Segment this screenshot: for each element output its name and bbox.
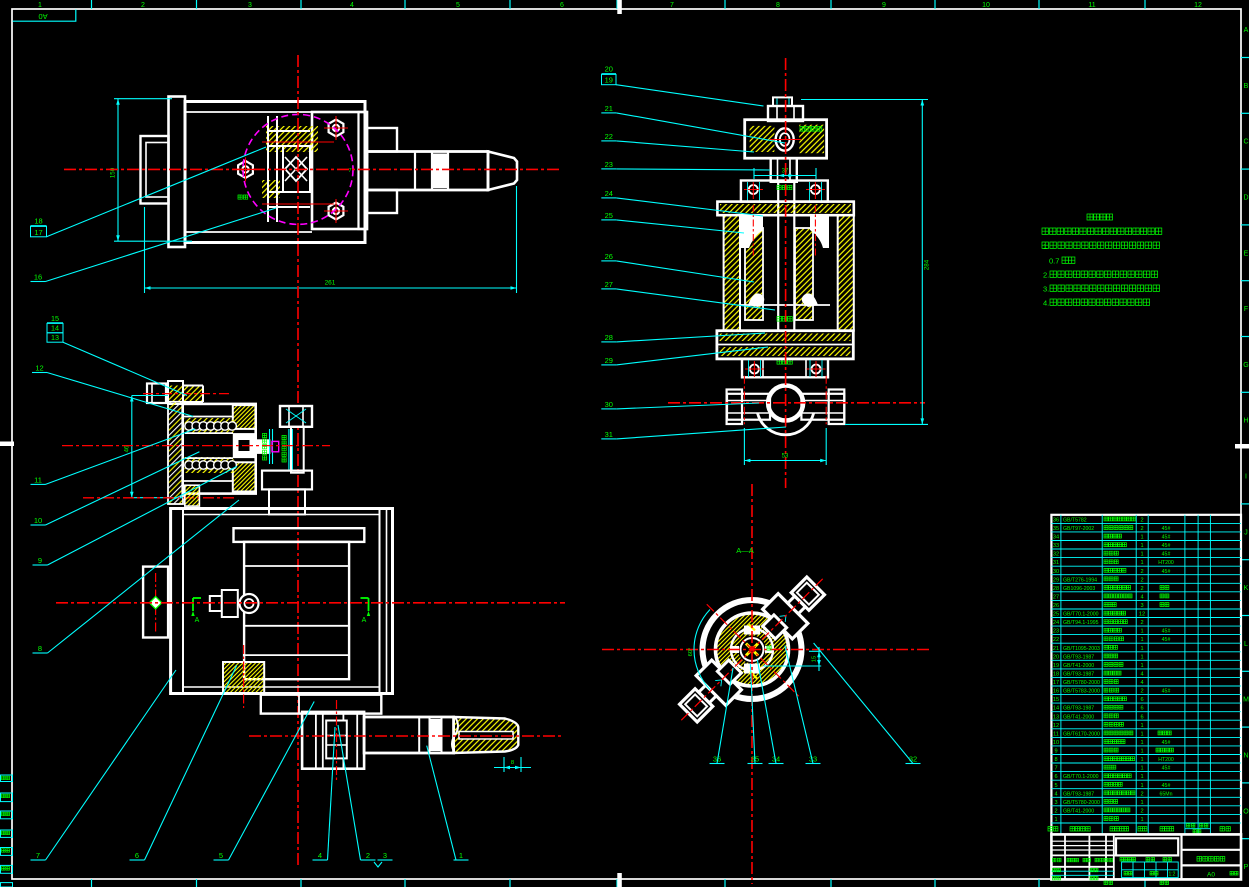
svg-text:2: 2: [1140, 620, 1143, 626]
svg-text:P: P: [1244, 864, 1249, 871]
svg-text:8: 8: [1054, 757, 1057, 763]
svg-text:A: A: [1244, 27, 1249, 34]
svg-text:33: 33: [1053, 543, 1059, 549]
svg-text:1: 1: [1140, 783, 1143, 789]
svg-text:9: 9: [1054, 749, 1057, 755]
svg-text:H: H: [1243, 418, 1248, 425]
svg-text:45#: 45#: [1162, 543, 1171, 549]
svg-text:1:2: 1:2: [1169, 872, 1176, 878]
svg-text:11: 11: [1088, 2, 1095, 9]
svg-text:4: 4: [350, 2, 354, 9]
svg-text:A: A: [362, 617, 367, 624]
svg-text:1: 1: [1140, 766, 1143, 772]
svg-text:2: 2: [1140, 791, 1143, 797]
svg-text:2: 2: [1140, 517, 1143, 523]
svg-text:M: M: [1243, 697, 1249, 704]
svg-text:A0: A0: [1207, 872, 1215, 879]
svg-text:20: 20: [605, 65, 613, 74]
svg-text:45#: 45#: [1162, 629, 1171, 635]
svg-text:12: 12: [1194, 2, 1202, 9]
svg-text:1: 1: [1140, 731, 1143, 737]
svg-text:19: 19: [605, 76, 613, 85]
svg-text:65Mn: 65Mn: [1160, 791, 1173, 797]
svg-text:35: 35: [1053, 526, 1059, 532]
svg-text:1: 1: [1140, 757, 1143, 763]
svg-text:1.: 1.: [1043, 242, 1049, 251]
svg-text:GB/T93-1987: GB/T93-1987: [1063, 706, 1094, 712]
svg-text:A—A: A—A: [736, 546, 754, 555]
svg-text:7: 7: [670, 2, 674, 9]
svg-text:27: 27: [1053, 594, 1059, 600]
svg-text:GB/T41-2000: GB/T41-2000: [1063, 714, 1094, 720]
svg-text:3: 3: [1140, 603, 1143, 609]
svg-text:24: 24: [605, 189, 613, 198]
svg-text:3: 3: [1054, 800, 1057, 806]
svg-text:26: 26: [1053, 603, 1059, 609]
svg-text:2.: 2.: [1043, 271, 1049, 280]
svg-text:6: 6: [1140, 714, 1143, 720]
svg-text:E: E: [1244, 250, 1249, 257]
svg-text:2: 2: [1140, 689, 1143, 695]
svg-text:3: 3: [383, 851, 387, 860]
svg-text:5: 5: [1054, 783, 1057, 789]
svg-text:GB1096-2003: GB1096-2003: [1063, 586, 1095, 592]
svg-text:19: 19: [1053, 663, 1059, 669]
svg-text:6: 6: [135, 851, 139, 860]
svg-text:GB/T5780-2000: GB/T5780-2000: [1063, 680, 1100, 686]
svg-text:6: 6: [1140, 697, 1143, 703]
svg-text:29: 29: [1053, 577, 1059, 583]
svg-text:GB/T93-1987: GB/T93-1987: [1063, 672, 1094, 678]
svg-text:45#: 45#: [1162, 569, 1171, 575]
svg-text:2: 2: [1140, 569, 1143, 575]
svg-text:9: 9: [38, 556, 42, 565]
svg-text:GB/T1095-2003: GB/T1095-2003: [1063, 646, 1100, 652]
svg-text:1: 1: [1140, 663, 1143, 669]
svg-text:12: 12: [1139, 612, 1145, 618]
svg-text:36: 36: [1053, 517, 1059, 523]
svg-text:G: G: [1243, 362, 1248, 369]
svg-text:10: 10: [982, 2, 990, 9]
svg-text:23: 23: [1053, 629, 1059, 635]
svg-text:21: 21: [1053, 646, 1059, 652]
svg-text:1: 1: [1140, 535, 1143, 541]
svg-text:32: 32: [1053, 552, 1059, 558]
svg-text:15: 15: [51, 314, 59, 323]
svg-text:1: 1: [1140, 646, 1143, 652]
svg-text:22: 22: [1053, 637, 1059, 643]
svg-text:4: 4: [318, 851, 322, 860]
svg-text:45#: 45#: [1162, 535, 1171, 541]
svg-text:L: L: [1244, 641, 1248, 648]
svg-text:5: 5: [456, 2, 460, 9]
svg-text:GB/T6170-2000: GB/T6170-2000: [1063, 731, 1100, 737]
svg-text:F: F: [1244, 306, 1248, 313]
svg-text:15: 15: [1053, 697, 1059, 703]
svg-text:4.: 4.: [1043, 299, 1049, 308]
svg-text:3.: 3.: [1043, 285, 1049, 294]
svg-text:4: 4: [1054, 791, 1057, 797]
svg-text:1: 1: [1140, 560, 1143, 566]
svg-text:29: 29: [605, 356, 613, 365]
svg-text:2: 2: [1140, 526, 1143, 532]
svg-text:2: 2: [141, 2, 145, 9]
svg-text:B: B: [1244, 83, 1249, 90]
svg-text:GB/T97-2002: GB/T97-2002: [1063, 526, 1094, 532]
svg-text:D: D: [1243, 195, 1248, 202]
svg-text:30: 30: [605, 400, 613, 409]
svg-text:11: 11: [34, 475, 42, 484]
svg-text:60°: 60°: [688, 648, 694, 657]
svg-text:45#: 45#: [1162, 552, 1171, 558]
svg-text:1: 1: [1140, 774, 1143, 780]
svg-text:1: 1: [1140, 749, 1143, 755]
svg-text:1: 1: [1140, 817, 1143, 823]
svg-text:GB/T93-1987: GB/T93-1987: [1063, 791, 1094, 797]
svg-text:HT200: HT200: [1158, 560, 1174, 566]
svg-text:4: 4: [1140, 672, 1143, 678]
svg-text:45#: 45#: [1162, 637, 1171, 643]
svg-text:34: 34: [1053, 535, 1059, 541]
svg-text:12: 12: [1053, 723, 1059, 729]
svg-text:4: 4: [1140, 594, 1143, 600]
svg-text:4: 4: [1140, 680, 1143, 686]
svg-text:45#: 45#: [1162, 526, 1171, 532]
svg-text:GB/T5780-2000: GB/T5780-2000: [1063, 800, 1100, 806]
svg-text:10: 10: [1053, 740, 1059, 746]
svg-text:8: 8: [776, 2, 780, 9]
svg-text:2: 2: [1140, 586, 1143, 592]
svg-text:GB/T41-2000: GB/T41-2000: [1063, 663, 1094, 669]
svg-text:GB/T5783-2000: GB/T5783-2000: [1063, 689, 1100, 695]
svg-text:O: O: [1243, 808, 1249, 815]
svg-text:GB/T70.1-2000: GB/T70.1-2000: [1063, 612, 1099, 618]
svg-text:HT200: HT200: [1158, 757, 1174, 763]
svg-text:28: 28: [605, 333, 613, 342]
svg-text:22: 22: [605, 132, 613, 141]
svg-text:20: 20: [1053, 654, 1059, 660]
svg-text:15: 15: [812, 656, 818, 662]
svg-text:2: 2: [1054, 808, 1057, 814]
svg-text:8: 8: [511, 760, 514, 766]
svg-text:2: 2: [1140, 577, 1143, 583]
svg-text:6: 6: [560, 2, 564, 9]
svg-text:1: 1: [1140, 637, 1143, 643]
svg-text:1: 1: [1054, 817, 1057, 823]
svg-text:18: 18: [34, 217, 42, 226]
svg-text:C: C: [1243, 139, 1248, 146]
svg-text:GB/T93-1987: GB/T93-1987: [1063, 654, 1094, 660]
svg-text:30: 30: [1053, 569, 1059, 575]
svg-text:12: 12: [35, 364, 43, 373]
svg-text:26: 26: [605, 252, 613, 261]
svg-text:25: 25: [605, 211, 613, 220]
svg-text:16: 16: [34, 273, 42, 282]
svg-text:14: 14: [1053, 706, 1059, 712]
svg-text:GB/T70.1-2000: GB/T70.1-2000: [1063, 774, 1099, 780]
svg-text:1: 1: [1140, 552, 1143, 558]
svg-text:1: 1: [38, 2, 42, 9]
svg-text:1: 1: [459, 851, 463, 860]
svg-text:1: 1: [1140, 654, 1143, 660]
svg-text:1: 1: [1140, 800, 1143, 806]
svg-text:0.7: 0.7: [1049, 257, 1059, 266]
svg-text:GB/T5782: GB/T5782: [1063, 517, 1087, 523]
svg-text:18: 18: [1053, 672, 1059, 678]
svg-text:11: 11: [1053, 731, 1059, 737]
svg-text:9: 9: [882, 2, 886, 9]
svg-text:53: 53: [782, 454, 789, 460]
svg-text:N: N: [1243, 753, 1248, 760]
svg-text:5: 5: [219, 851, 223, 860]
svg-text:GB/T41-2000: GB/T41-2000: [1063, 808, 1094, 814]
svg-text:1: 1: [1140, 740, 1143, 746]
svg-text:27: 27: [605, 280, 613, 289]
svg-text:2: 2: [366, 851, 370, 860]
svg-text:8: 8: [38, 644, 42, 653]
svg-text:16: 16: [1053, 689, 1059, 695]
svg-text:3: 3: [248, 2, 252, 9]
svg-text:25: 25: [1053, 612, 1059, 618]
svg-text:17: 17: [1053, 680, 1059, 686]
svg-text:J: J: [1244, 529, 1248, 536]
svg-text:28: 28: [1053, 586, 1059, 592]
svg-text:17: 17: [34, 228, 42, 237]
svg-text:45#: 45#: [1162, 689, 1171, 695]
svg-text:13: 13: [51, 333, 59, 342]
svg-text:21: 21: [605, 104, 613, 113]
svg-text:6: 6: [1054, 774, 1057, 780]
svg-text:24: 24: [1053, 620, 1059, 626]
svg-text:A0: A0: [38, 12, 47, 21]
svg-text:31: 31: [1053, 560, 1059, 566]
svg-text:A: A: [195, 617, 200, 624]
svg-text:6: 6: [1140, 706, 1143, 712]
svg-text:GB/T276-1994: GB/T276-1994: [1063, 577, 1097, 583]
svg-text:K: K: [1244, 585, 1249, 592]
svg-text:2: 2: [1140, 808, 1143, 814]
svg-text:31: 31: [605, 430, 613, 439]
svg-text:1: 1: [1140, 723, 1143, 729]
svg-text:45#: 45#: [1162, 783, 1171, 789]
svg-text:13: 13: [1053, 714, 1059, 720]
svg-text:GB/T94.1-1995: GB/T94.1-1995: [1063, 620, 1099, 626]
svg-text:45#: 45#: [1162, 766, 1171, 772]
svg-text:1: 1: [1140, 629, 1143, 635]
svg-text:284: 284: [924, 259, 931, 270]
svg-text:I: I: [1245, 474, 1247, 481]
svg-text:45#: 45#: [1162, 740, 1171, 746]
svg-text:261: 261: [325, 280, 336, 287]
svg-text:23: 23: [605, 160, 613, 169]
svg-text:10: 10: [34, 516, 42, 525]
svg-text:1: 1: [1140, 543, 1143, 549]
svg-text:14: 14: [51, 324, 59, 333]
svg-text:7: 7: [1054, 766, 1057, 772]
svg-text:32: 32: [909, 755, 917, 764]
svg-text:7: 7: [36, 851, 40, 860]
